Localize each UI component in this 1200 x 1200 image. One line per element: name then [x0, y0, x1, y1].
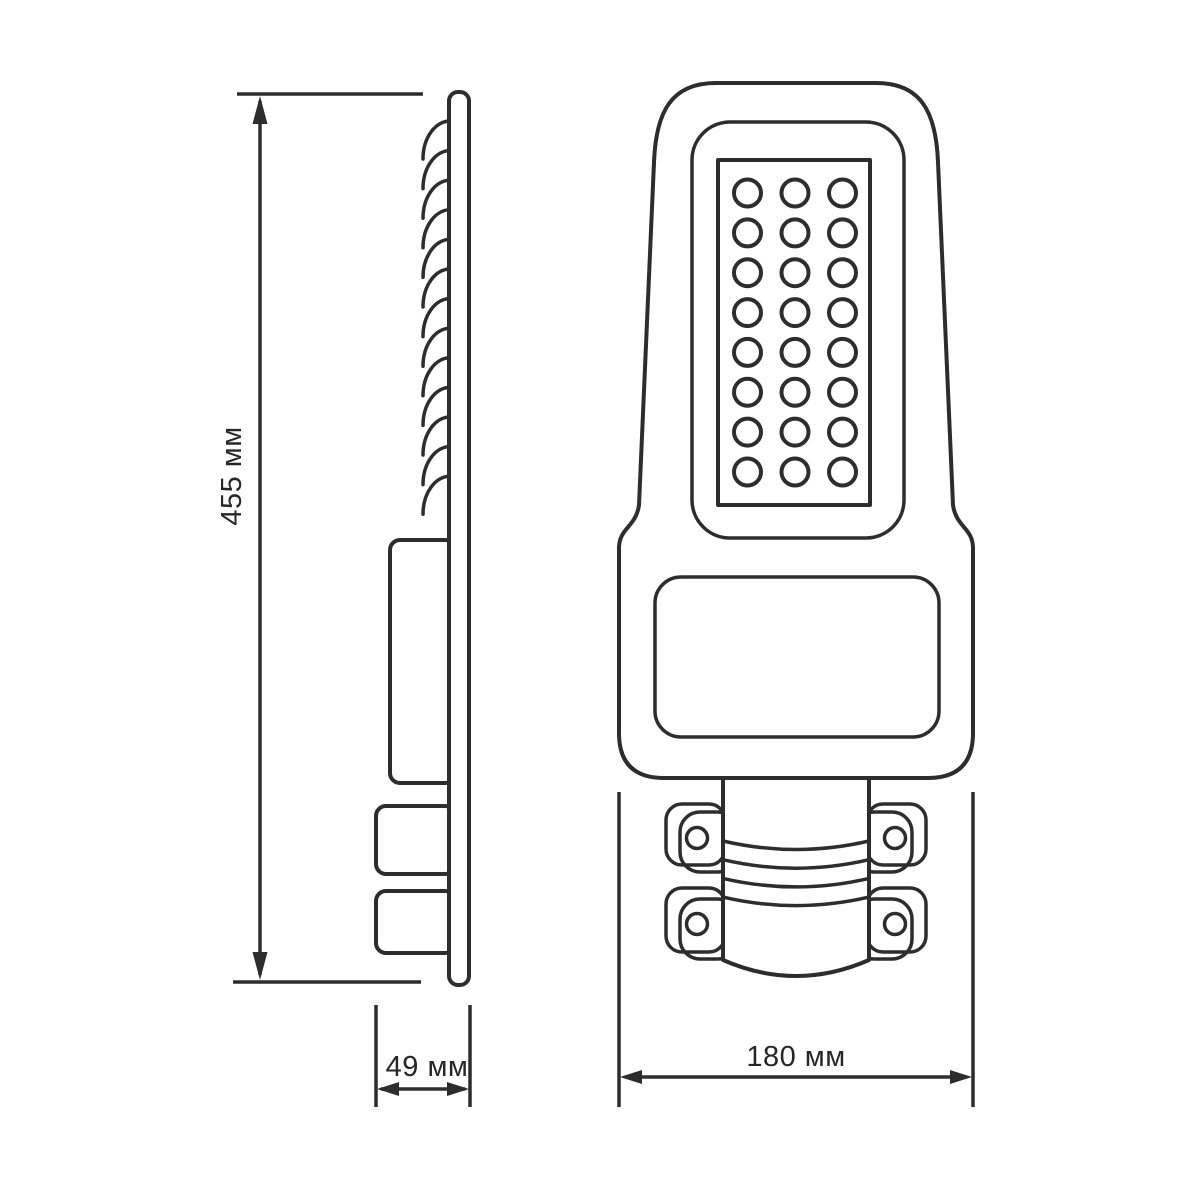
heatsink-fin: [423, 269, 450, 307]
arrowhead-right: [447, 1082, 469, 1096]
arrowhead-left: [620, 1070, 642, 1084]
front-view: [619, 83, 973, 976]
bolt-hole: [687, 828, 708, 849]
led-panel: [718, 160, 870, 505]
heatsink-fin: [423, 121, 450, 159]
mounting-bracket: [666, 781, 926, 976]
heatsink-fin: [423, 210, 450, 248]
side-driver-box: [390, 540, 455, 783]
side-body-slab: [449, 92, 469, 985]
bolt-hole: [687, 914, 708, 935]
arrowhead-left: [377, 1082, 399, 1096]
heatsink-fin: [423, 180, 450, 218]
dimension-depth-label: 49 мм: [386, 1051, 469, 1083]
heatsink-fin: [423, 387, 450, 425]
heatsink-fin: [423, 151, 450, 189]
technical-drawing-page: 455 мм 49 мм 180 мм: [0, 0, 1200, 1200]
heatsink-fin: [423, 417, 450, 455]
pole-tube: [723, 781, 869, 976]
bolt-hole: [885, 914, 906, 935]
dimension-width-label: 180 мм: [746, 1041, 845, 1073]
side-view: [376, 92, 469, 985]
bolt-hole: [885, 828, 906, 849]
dimensional-drawing: 455 мм 49 мм 180 мм: [0, 0, 1200, 1200]
arrowhead-up: [253, 96, 268, 124]
dimension-depth: 49 мм: [376, 1005, 470, 1107]
arrowhead-down: [253, 952, 268, 980]
heatsink-fin: [423, 299, 450, 337]
heatsink-fin: [423, 239, 450, 277]
heatsink-fin: [423, 328, 450, 366]
heatsink-fin: [423, 476, 450, 514]
dimension-height-label: 455 мм: [216, 426, 248, 525]
heatsink-fin: [423, 358, 450, 396]
heatsink-fins: [423, 121, 450, 514]
heatsink-fin: [423, 447, 450, 485]
side-clamp-block-upper: [376, 806, 455, 874]
side-clamp-block-lower: [376, 891, 455, 953]
arrowhead-right: [950, 1070, 972, 1084]
